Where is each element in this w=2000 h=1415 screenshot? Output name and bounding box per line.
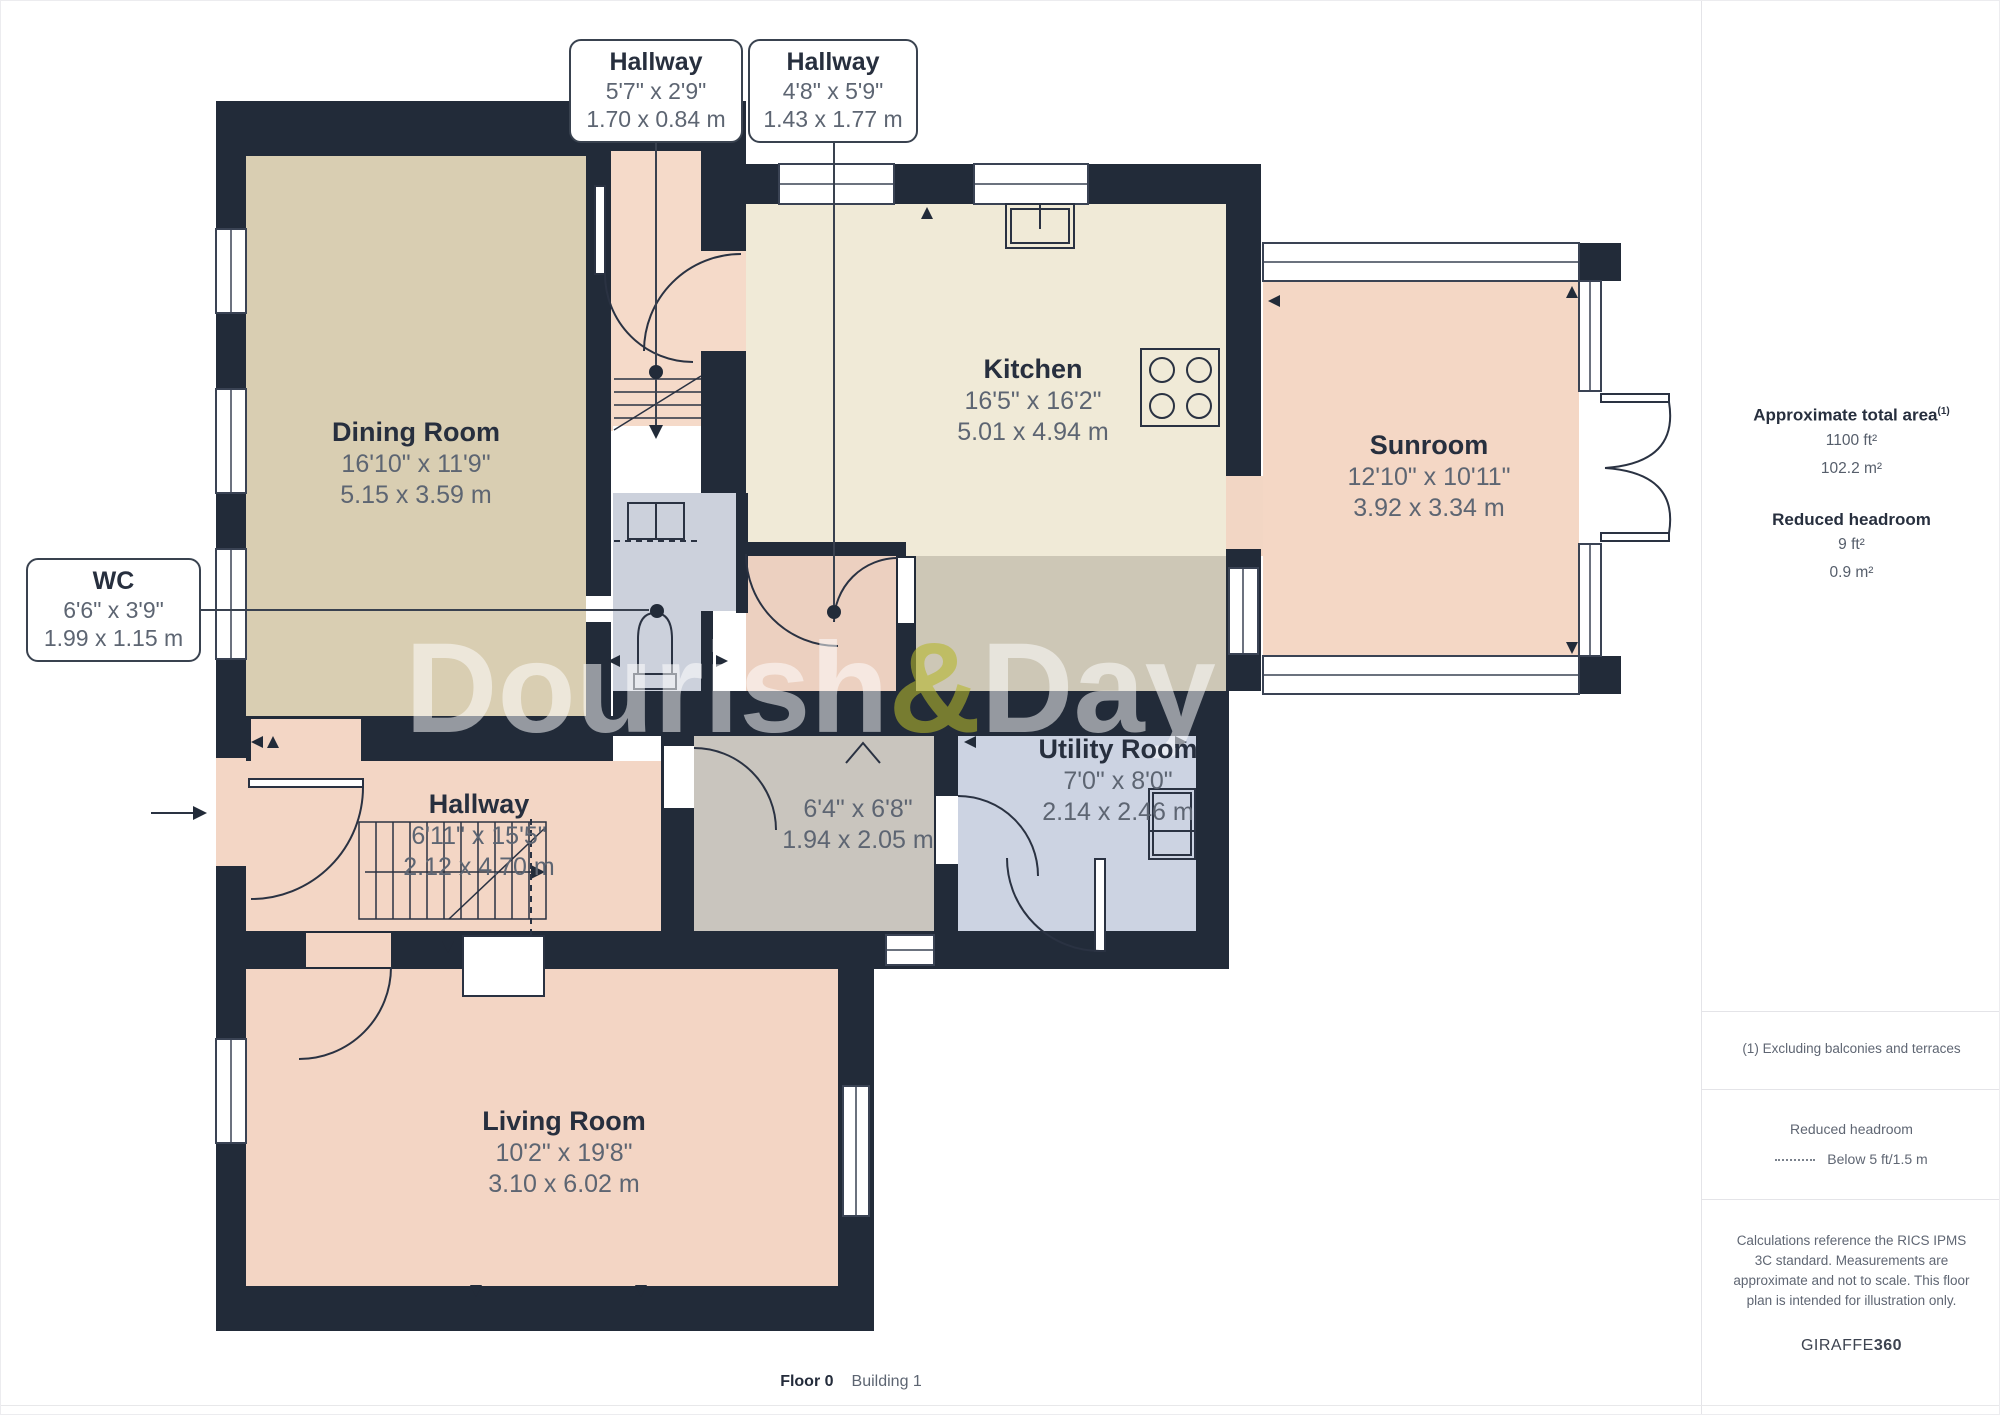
fireplace (463, 936, 544, 996)
room-dim-imperial: 6'11" x 15'5" (403, 821, 554, 852)
room-label-inner-hall: 6'4" x 6'8" 1.94 x 2.05 m (782, 794, 933, 856)
room-dim-metric: 5.15 x 3.59 m (332, 480, 500, 511)
disclaimer-text: Calculations reference the RICS IPMS 3C … (1730, 1231, 1974, 1311)
disclaimer-block: Calculations reference the RICS IPMS 3C … (1702, 1231, 2000, 1355)
callout-dim-imperial: 6'6" x 3'9" (32, 596, 195, 624)
room-dim-imperial: 10'2" x 19'8" (482, 1138, 646, 1169)
room-name: Utility Room (1039, 733, 1198, 766)
room-dim-imperial: 16'10" x 11'9" (332, 449, 500, 480)
room-dim-imperial: 16'5" x 16'2" (957, 386, 1108, 417)
room-name: Dining Room (332, 416, 500, 449)
bottom-border (1, 1405, 2000, 1406)
french-door-arc (1605, 468, 1670, 533)
plan-footer: Floor 0 Building 1 (1, 1373, 1701, 1391)
room-label-kitchen: Kitchen 16'5" x 16'2" 5.01 x 4.94 m (957, 353, 1108, 448)
french-door-arc (1605, 402, 1670, 468)
room-dim-metric: 3.10 x 6.02 m (482, 1169, 646, 1200)
room-dim-metric: 2.14 x 2.46 m (1039, 797, 1198, 828)
room-label-utility-room: Utility Room 7'0" x 8'0" 2.14 x 2.46 m (1039, 733, 1198, 828)
room-dim-metric: 2.12 x 4.70 m (403, 852, 554, 883)
room-dim-imperial: 6'4" x 6'8" (782, 794, 933, 825)
room-label-hallway: Hallway 6'11" x 15'5" 2.12 x 4.70 m (403, 788, 554, 883)
reduced-headroom-m: 0.9 m² (1702, 559, 2000, 587)
door-leaf (595, 186, 605, 274)
room-name: Hallway (403, 788, 554, 821)
reduced-headroom-ft: 9 ft² (1702, 531, 2000, 559)
entry-arrow-icon (151, 806, 207, 820)
footnote-marker: (1) (1938, 406, 1950, 417)
floorplan-page: Dourish&Day Dining Room 16'10" x 11'9" 5… (0, 0, 2000, 1415)
room-name: Kitchen (957, 353, 1108, 386)
room-label-dining-room: Dining Room 16'10" x 11'9" 5.15 x 3.59 m (332, 416, 500, 511)
room-label-sunroom: Sunroom 12'10" x 10'11" 3.92 x 3.34 m (1347, 429, 1510, 524)
legend-title: Reduced headroom (1702, 1119, 2000, 1139)
sidebar-divider (1702, 1199, 2000, 1200)
room-name: Sunroom (1347, 429, 1510, 462)
callout-wc: WC 6'6" x 3'9" 1.99 x 1.15 m (26, 558, 201, 662)
legend-item-label: Below 5 ft/1.5 m (1827, 1151, 1927, 1167)
floor-label: Floor 0 (780, 1373, 833, 1391)
footnote-block: (1) Excluding balconies and terraces (1702, 1041, 2000, 1056)
room-dim-metric: 5.01 x 4.94 m (957, 417, 1108, 448)
callout-dim-metric: 1.43 x 1.77 m (754, 105, 912, 133)
info-sidebar: Approximate total area(1) 1100 ft² 102.2… (1701, 1, 2000, 1415)
building-label: Building 1 (852, 1373, 922, 1391)
room-dim-imperial: 7'0" x 8'0" (1039, 766, 1198, 797)
total-area-m: 102.2 m² (1702, 455, 2000, 483)
room-label-living-room: Living Room 10'2" x 19'8" 3.10 x 6.02 m (482, 1105, 646, 1200)
sidebar-divider (1702, 1089, 2000, 1090)
giraffe360-logo: GIRAFFE360 (1702, 1337, 2000, 1355)
callout-dim-metric: 1.99 x 1.15 m (32, 624, 195, 652)
total-area-block: Approximate total area(1) 1100 ft² 102.2… (1702, 401, 2000, 587)
room-dim-imperial: 12'10" x 10'11" (1347, 462, 1510, 493)
sidebar-divider (1702, 1011, 2000, 1012)
callout-title: WC (32, 566, 195, 596)
total-area-ft: 1100 ft² (1702, 427, 2000, 455)
dotted-line-icon (1775, 1159, 1815, 1161)
callout-hallway-1: Hallway 5'7" x 2'9" 1.70 x 0.84 m (569, 39, 743, 143)
legend-block: Reduced headroom Below 5 ft/1.5 m (1702, 1119, 2000, 1167)
room-dim-metric: 1.94 x 2.05 m (782, 825, 933, 856)
door-leaf (249, 779, 363, 787)
french-door-leaf (1601, 394, 1669, 402)
callout-dim-metric: 1.70 x 0.84 m (575, 105, 737, 133)
callout-title: Hallway (754, 47, 912, 77)
reduced-headroom-title: Reduced headroom (1702, 509, 2000, 531)
callout-dim-imperial: 4'8" x 5'9" (754, 77, 912, 105)
callout-dim-imperial: 5'7" x 2'9" (575, 77, 737, 105)
legend-row: Below 5 ft/1.5 m (1702, 1151, 2000, 1167)
french-door-leaf (1601, 533, 1669, 541)
room-name: Living Room (482, 1105, 646, 1138)
callout-hallway-2: Hallway 4'8" x 5'9" 1.43 x 1.77 m (748, 39, 918, 143)
room-dim-metric: 3.92 x 3.34 m (1347, 493, 1510, 524)
callout-title: Hallway (575, 47, 737, 77)
door-leaf (1095, 859, 1105, 951)
footnote-text: (1) Excluding balconies and terraces (1702, 1041, 2000, 1056)
total-area-title: Approximate total area(1) (1702, 401, 2000, 427)
